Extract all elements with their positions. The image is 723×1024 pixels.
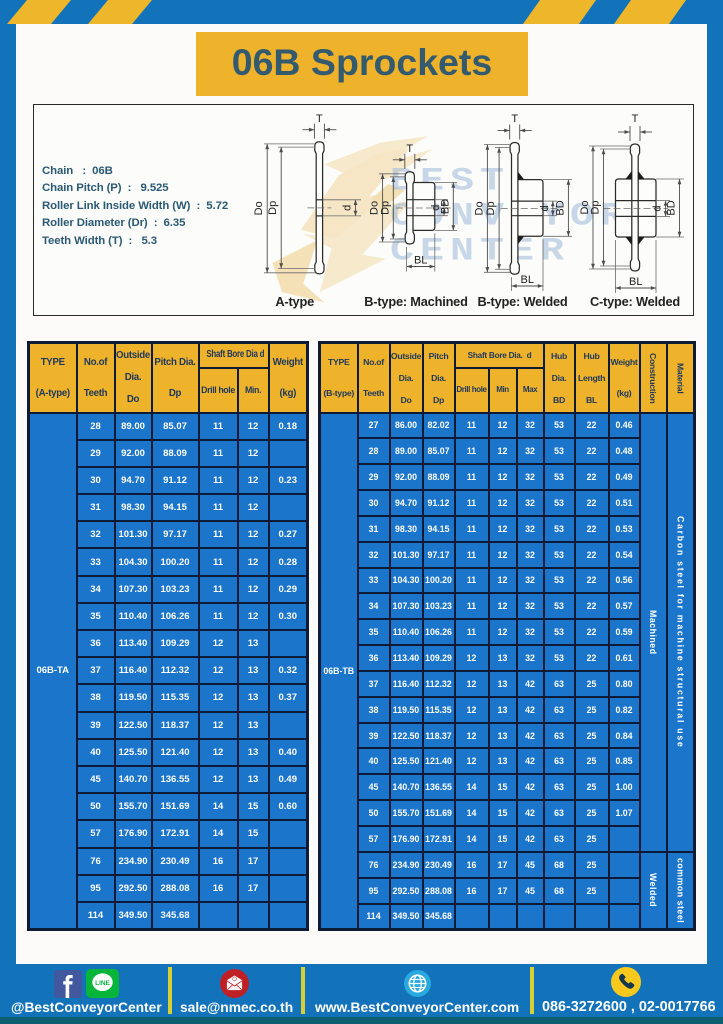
svg-text:BD: BD: [439, 199, 451, 214]
svg-text:T: T: [511, 113, 518, 125]
svg-text:B-type: Machined: B-type: Machined: [364, 294, 467, 309]
svg-text:Dp: Dp: [485, 201, 497, 215]
svg-text:d: d: [342, 205, 354, 211]
svg-text:BD: BD: [554, 200, 566, 215]
svg-text:A-type: A-type: [275, 294, 314, 309]
svg-text:BD: BD: [666, 200, 678, 215]
svg-text:Dp: Dp: [267, 201, 279, 215]
svg-text:B-type: Welded: B-type: Welded: [477, 294, 567, 309]
svg-text:C-type: Welded: C-type: Welded: [590, 294, 680, 309]
svg-text:Dp: Dp: [379, 201, 391, 215]
svg-text:T: T: [316, 113, 323, 125]
svg-text:Do: Do: [473, 201, 485, 215]
svg-text:d: d: [652, 205, 664, 211]
svg-text:d: d: [539, 205, 551, 211]
svg-text:T: T: [632, 113, 639, 125]
svg-text:BL: BL: [521, 274, 534, 286]
svg-text:BL: BL: [629, 276, 642, 288]
svg-text:BL: BL: [414, 255, 427, 267]
svg-text:Dp: Dp: [590, 200, 602, 214]
svg-text:T: T: [406, 143, 413, 155]
svg-text:Do: Do: [253, 201, 265, 215]
svg-text:LINE: LINE: [95, 980, 110, 987]
